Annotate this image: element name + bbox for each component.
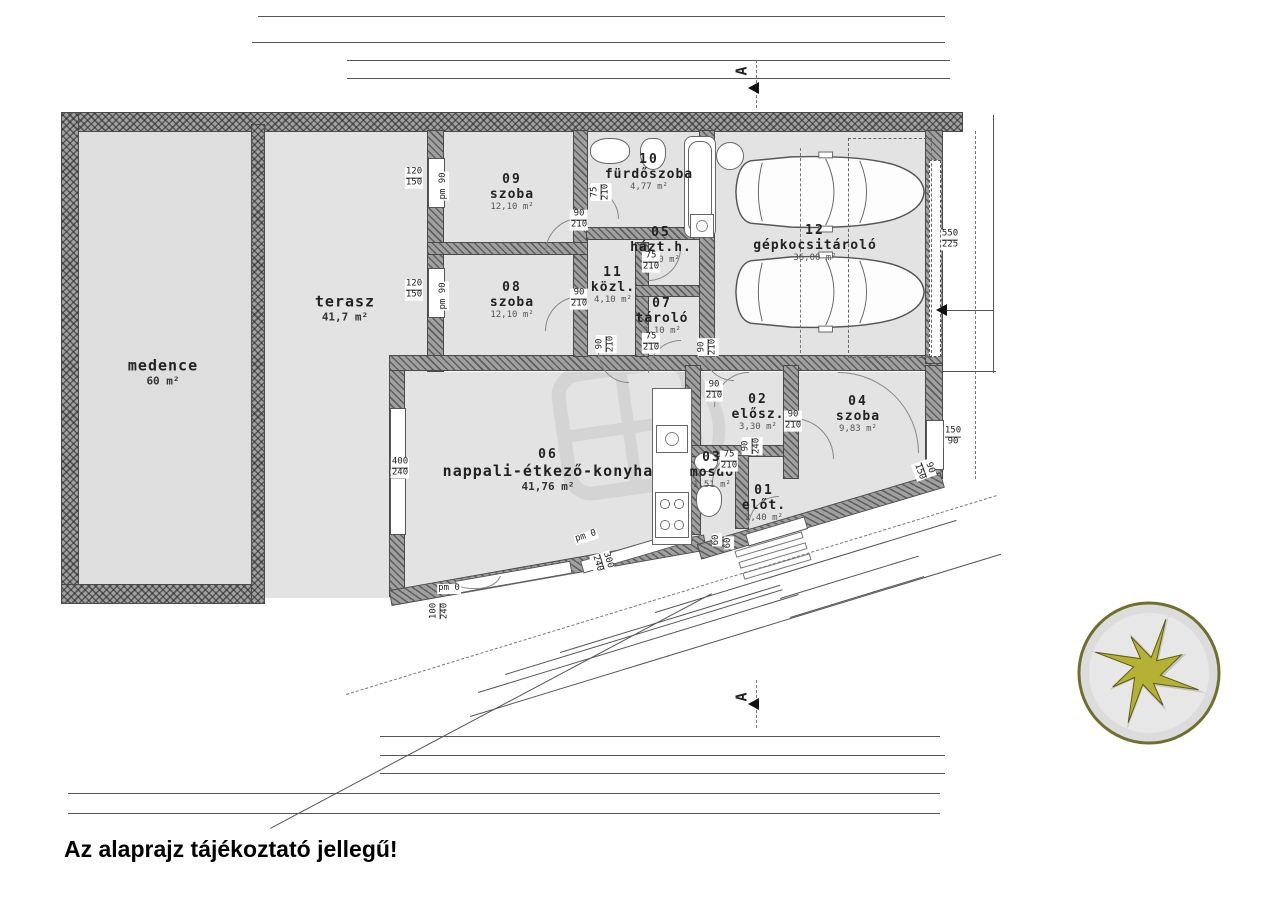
- room-name: szoba: [490, 187, 534, 202]
- room-area: 12,10 m²: [490, 202, 534, 212]
- room-label: 10 fürdőszoba 4,77 m²: [605, 152, 693, 192]
- opening-width: 100: [430, 603, 440, 619]
- opening-label: 75 210: [642, 333, 660, 354]
- driveway-bottom: [942, 371, 996, 372]
- room-label: 07 tároló 3,10 m²: [636, 296, 689, 336]
- compass-rose: [1072, 596, 1227, 751]
- opening-height: 210: [571, 299, 587, 310]
- opening-height: 210: [643, 343, 659, 354]
- dim-line-diag: [478, 594, 799, 693]
- opening-label: 90 210: [596, 335, 617, 353]
- opening-width: 550: [942, 230, 958, 240]
- room-number: 10: [605, 152, 693, 167]
- dimension-label: [689, 598, 691, 599]
- room-name: nappali-étkező-konyha: [443, 462, 654, 480]
- opening-height: 210: [785, 421, 801, 432]
- room-area: 3,10 m²: [630, 255, 692, 265]
- room-number: 07: [636, 296, 689, 311]
- room-area: 1,51 m²: [690, 480, 734, 490]
- opening-label: 550 225: [941, 230, 959, 251]
- opening-label: 90 210: [705, 381, 723, 402]
- opening-width: 75: [643, 333, 659, 343]
- room-name: gépkocsitároló: [753, 238, 877, 253]
- driveway-edge: [993, 115, 994, 373]
- dim-line: [258, 16, 945, 17]
- dimension-label: [733, 585, 735, 586]
- dim-line: [380, 736, 940, 737]
- opening-label: 100 240: [430, 602, 451, 620]
- wall-pool-terrace-divider: [252, 125, 264, 603]
- opening-height: 240: [392, 468, 408, 479]
- wall-top: [62, 113, 962, 131]
- opening-height: 210: [708, 339, 719, 355]
- room-number: 04: [836, 394, 880, 409]
- washing-machine: [690, 214, 714, 238]
- disclaimer-text: Az alaprajz tájékoztató jellegű!: [64, 836, 398, 863]
- room-number: 06: [443, 447, 654, 462]
- opening-label: 90 210: [570, 210, 588, 231]
- opening-height: 210: [606, 336, 617, 352]
- dimension-label: [612, 632, 614, 633]
- opening-height: 90: [945, 437, 961, 448]
- opening-height: 210: [601, 184, 612, 200]
- room-number: 01: [742, 483, 786, 498]
- opening-width: 60: [712, 535, 722, 546]
- room-number: 11: [591, 265, 635, 280]
- dimension-label: [742, 650, 744, 651]
- dimension-label: [803, 588, 805, 589]
- opening-width: 90: [785, 411, 801, 421]
- dimension-label: [633, 650, 635, 651]
- compass-star: [1072, 596, 1227, 751]
- room-label: 04 szoba 9,83 m²: [836, 394, 880, 434]
- room-area: 12,10 m²: [490, 310, 534, 320]
- dimension-label: [812, 606, 814, 607]
- room-name: tároló: [636, 311, 689, 326]
- room-name: közl.: [591, 280, 635, 295]
- room-name: terasz: [315, 293, 375, 311]
- opening-height: 210: [643, 262, 659, 273]
- gate-arrow-line: [940, 310, 994, 311]
- opening-height: 210: [571, 220, 587, 231]
- room-number: 05: [630, 225, 692, 240]
- section-arrow-top: [748, 82, 759, 94]
- opening-width: 75: [721, 451, 737, 461]
- opening-label: pm 90: [439, 171, 449, 200]
- opening-width: 120: [406, 280, 422, 290]
- opening-width: 400: [392, 458, 408, 468]
- opening-width: 150: [945, 427, 961, 437]
- room-area: 41,7 m²: [315, 311, 375, 324]
- opening-label: 75 210: [642, 252, 660, 273]
- room-label: 11 közl. 4,10 m²: [591, 265, 635, 305]
- opening-label: 75 210: [720, 451, 738, 472]
- opening-height: 225: [942, 240, 958, 251]
- room-area: 2,40 m²: [742, 513, 786, 523]
- room-name: szoba: [836, 409, 880, 424]
- opening-height: 150: [406, 178, 422, 189]
- room-area: 4,77 m²: [605, 182, 693, 192]
- opening-label: 400 240: [391, 458, 409, 479]
- room-label: 02 elősz. 3,30 m²: [732, 392, 785, 432]
- dimension-label: [933, 519, 935, 520]
- dim-line: [347, 60, 950, 61]
- room-name: elősz.: [732, 407, 785, 422]
- room-label: medence 60 m²: [128, 357, 198, 388]
- dim-line: [380, 755, 945, 756]
- dim-line: [68, 813, 940, 814]
- room-area: 3,30 m²: [732, 422, 785, 432]
- room-number: 09: [490, 172, 534, 187]
- driveway-dashed: [975, 131, 976, 479]
- floor-plan: A A medence 60 m² terasz 41,7 m² 09 szob…: [0, 0, 1280, 908]
- dim-line: [252, 42, 945, 43]
- kitchen-sink: [656, 425, 688, 453]
- opening-label: 120 150: [405, 280, 423, 301]
- room-label: 09 szoba 12,10 m²: [490, 172, 534, 212]
- opening-width: pm 90: [439, 172, 449, 199]
- opening-label: pm 90: [439, 281, 449, 310]
- opening-height: 210: [706, 391, 722, 402]
- opening-height: 240: [752, 438, 763, 454]
- dimension-label: [637, 668, 639, 669]
- opening-width: 90: [698, 339, 708, 355]
- room-name: házt.h.: [630, 240, 692, 255]
- opening-label: 90 210: [570, 289, 588, 310]
- room-number: 02: [732, 392, 785, 407]
- room-label: 01 előt. 2,40 m²: [742, 483, 786, 523]
- dim-line: [347, 78, 950, 79]
- gate-arrow-head: [936, 304, 947, 316]
- opening-label: 75 210: [591, 183, 612, 201]
- room-number: 08: [490, 280, 534, 295]
- opening-width: 75: [643, 252, 659, 262]
- dim-line: [380, 773, 945, 774]
- opening-height: 240: [440, 603, 451, 619]
- section-letter-top: A: [733, 66, 751, 75]
- dimension-label: [914, 575, 916, 576]
- opening-width: 75: [591, 184, 601, 200]
- window-living-2: [390, 478, 406, 535]
- room-label: 05 házt.h. 3,10 m²: [630, 225, 692, 265]
- opening-label: 90 240: [742, 437, 763, 455]
- room-area: 36,00 m²: [753, 253, 877, 263]
- opening-height: 210: [721, 461, 737, 472]
- dimension-label: [878, 540, 880, 541]
- wall-pool-left: [62, 113, 78, 603]
- room-area: 4,10 m²: [591, 295, 635, 305]
- room-name: medence: [128, 357, 198, 375]
- opening-width: 90: [596, 336, 606, 352]
- opening-width: 90: [706, 381, 722, 391]
- opening-width: 90: [571, 210, 587, 220]
- opening-height: 150: [406, 290, 422, 301]
- room-label: 12 gépkocsitároló 36,00 m²: [753, 223, 877, 263]
- room-name: fürdőszoba: [605, 167, 693, 182]
- room-number: 12: [753, 223, 877, 238]
- room-area: 60 m²: [128, 375, 198, 388]
- room-label: 06 nappali-étkező-konyha 41,76 m²: [443, 447, 654, 493]
- room-label: 08 szoba 12,10 m²: [490, 280, 534, 320]
- dimension-label: [903, 556, 905, 557]
- opening-label: 150 90: [944, 427, 962, 448]
- dimension-label: [764, 612, 766, 613]
- room-name: szoba: [490, 295, 534, 310]
- dimension-label: [795, 565, 797, 566]
- room-name: előt.: [742, 498, 786, 513]
- opening-width: 90: [742, 438, 752, 454]
- wall-pool-bottom: [62, 585, 264, 603]
- opening-width: pm 90: [439, 282, 449, 309]
- opening-width: 90: [571, 289, 587, 299]
- opening-label: 60: [712, 534, 722, 547]
- room-area: 41,76 m²: [443, 480, 654, 493]
- opening-width: 120: [406, 168, 422, 178]
- section-letter-bottom: A: [733, 692, 751, 701]
- opening-label: 60: [724, 537, 734, 550]
- room-area: 9,83 m²: [836, 424, 880, 434]
- kitchen-stove: [655, 492, 689, 538]
- opening-label: 90 210: [698, 338, 719, 356]
- opening-width: pm 0: [438, 584, 460, 594]
- opening-label: 90 210: [784, 411, 802, 432]
- dim-line: [68, 793, 940, 794]
- opening-label: 120 150: [405, 168, 423, 189]
- room-label: terasz 41,7 m²: [315, 293, 375, 324]
- opening-width: 60: [724, 538, 734, 549]
- dimension-label: [855, 578, 857, 579]
- opening-label: pm 0: [437, 584, 461, 594]
